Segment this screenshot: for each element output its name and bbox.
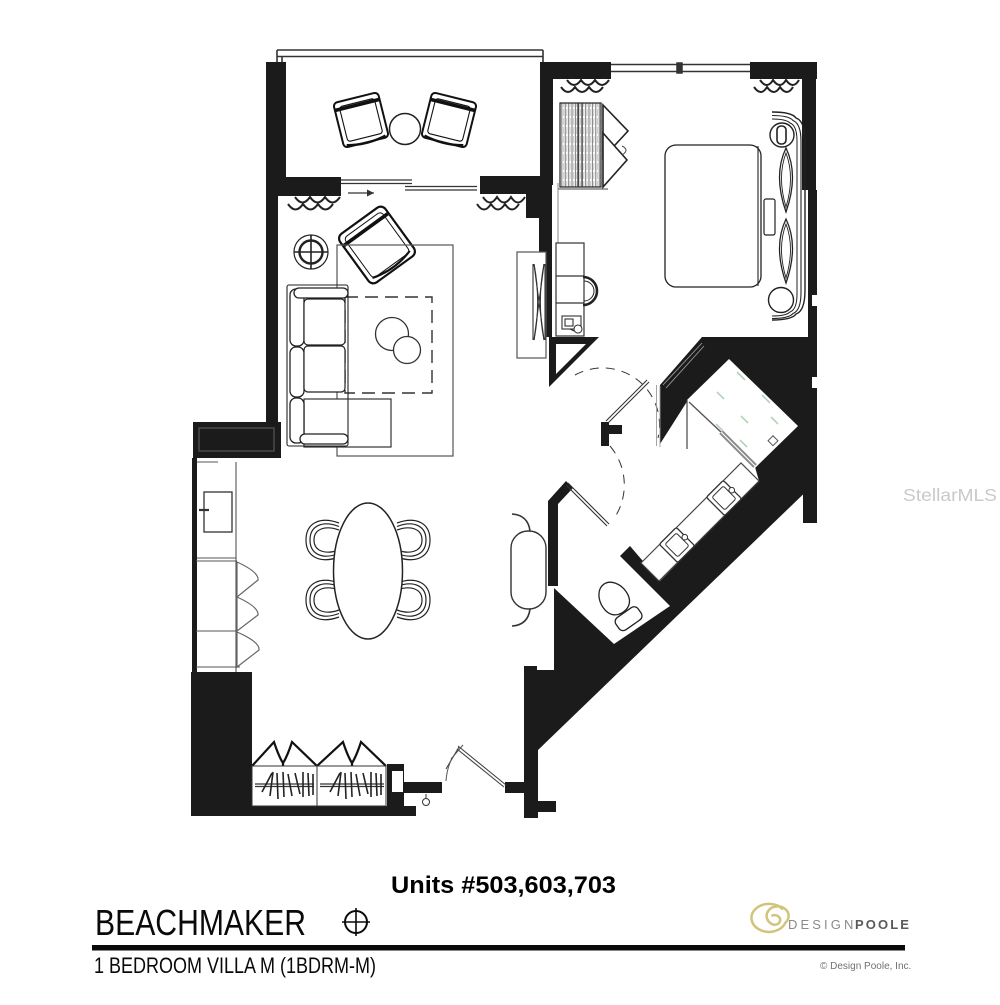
svg-text:StellarMLS: StellarMLS — [903, 485, 997, 505]
svg-text:Units #503,603,703: Units #503,603,703 — [391, 872, 616, 899]
svg-text:DESIGN: DESIGN — [788, 917, 856, 932]
svg-text:© Design Poole, Inc.: © Design Poole, Inc. — [820, 961, 911, 972]
svg-text:BEACHMAKER: BEACHMAKER — [95, 902, 306, 943]
svg-text:1 BEDROOM VILLA M (1BDRM-M): 1 BEDROOM VILLA M (1BDRM-M) — [94, 953, 376, 978]
svg-text:POOLE: POOLE — [855, 917, 911, 932]
